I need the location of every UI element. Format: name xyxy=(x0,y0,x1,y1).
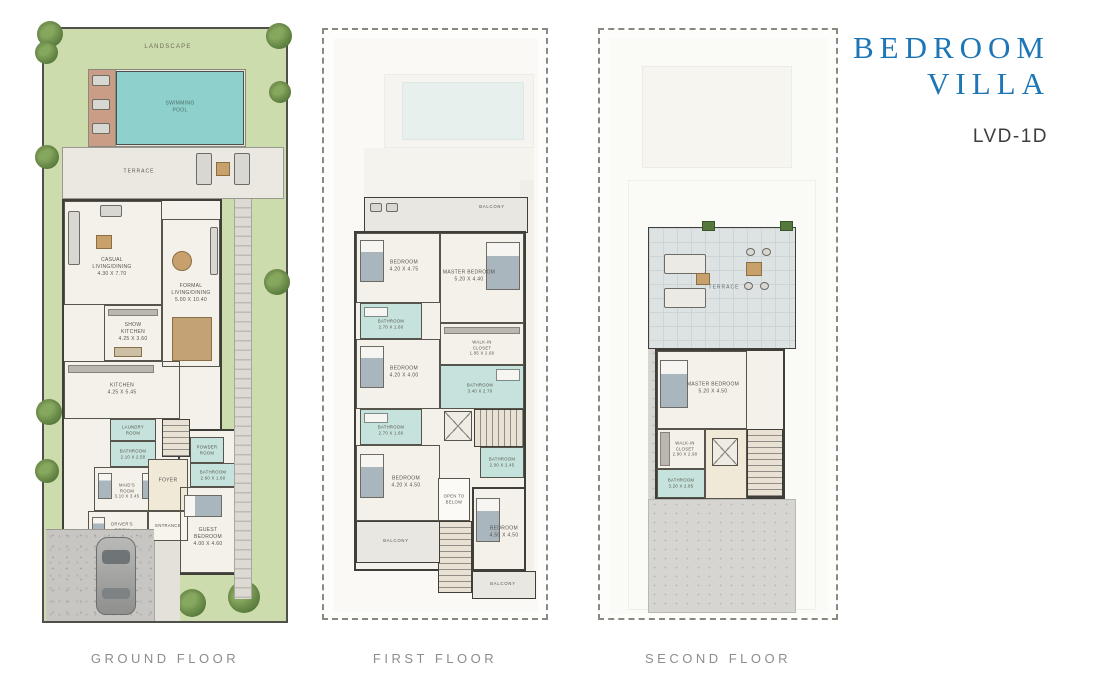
side-table-icon xyxy=(696,273,710,285)
room-bathroom-3 xyxy=(480,447,524,478)
planter-box-icon xyxy=(386,203,398,212)
faded-terrace xyxy=(364,148,534,200)
island-icon xyxy=(114,347,142,357)
table-icon xyxy=(746,262,762,276)
entry-walk xyxy=(154,541,180,621)
planter-box-icon xyxy=(370,203,382,212)
bed-icon xyxy=(360,454,384,498)
counter-icon xyxy=(108,309,158,316)
closet-shelf-icon xyxy=(444,327,520,334)
sofa-icon xyxy=(210,227,218,275)
bed-icon xyxy=(184,495,222,517)
bed-icon xyxy=(486,242,520,290)
lounger-icon xyxy=(664,288,706,308)
staircase xyxy=(162,419,190,457)
ground-floor-plan: LANDSCAPE SWIMMING POOL TERRACE CASUAL L… xyxy=(42,27,288,623)
armchair-icon xyxy=(234,153,250,185)
elevator xyxy=(444,411,472,441)
sofa-icon xyxy=(100,205,122,217)
tree-icon xyxy=(264,269,290,295)
bed-icon xyxy=(98,473,112,499)
car-windshield xyxy=(102,550,130,564)
planter-icon xyxy=(780,221,793,231)
tree-icon xyxy=(266,23,292,49)
closet-shelf-icon xyxy=(660,432,670,466)
bed-icon xyxy=(660,360,688,408)
table-icon xyxy=(216,162,230,176)
chair-icon xyxy=(746,248,755,256)
round-table-icon xyxy=(172,251,192,271)
page-title: 7 BEDROOM VILLA xyxy=(818,30,1050,102)
garden-path xyxy=(234,199,252,599)
tree-icon xyxy=(35,145,59,169)
staircase-lower xyxy=(438,521,472,593)
tree-icon xyxy=(36,399,62,425)
bathtub-icon xyxy=(364,307,388,317)
car-rear-window xyxy=(102,588,130,599)
caption-first-floor: FIRST FLOOR xyxy=(322,651,548,666)
page-title-line2: VILLA xyxy=(818,66,1050,102)
tree-icon xyxy=(178,589,206,617)
bathtub-icon xyxy=(364,413,388,423)
chair-icon xyxy=(760,282,769,290)
first-floor-plan: BALCONY BEDROOM 4.20 X 4.75 MASTER BEDRO… xyxy=(322,28,548,620)
tree-icon xyxy=(35,459,59,483)
tree-icon xyxy=(269,81,291,103)
terrace-area xyxy=(62,147,284,199)
page-title-line1: 7 BEDROOM xyxy=(818,30,1050,66)
counter-icon xyxy=(68,365,154,373)
staircase xyxy=(474,409,524,447)
tree-icon xyxy=(35,41,58,64)
room-bathroom-2 xyxy=(190,463,236,487)
bed-icon xyxy=(476,498,500,542)
dining-table-icon xyxy=(172,317,212,361)
swimming-pool xyxy=(116,71,244,145)
unit-code: LVD-1D xyxy=(973,126,1048,148)
open-to-below xyxy=(438,478,470,521)
balcony-right xyxy=(472,571,536,599)
sofa-icon xyxy=(68,211,80,265)
faded-roof-top xyxy=(642,66,792,168)
faded-pool xyxy=(402,82,524,140)
lounger-icon xyxy=(664,254,706,274)
roof-area xyxy=(648,499,796,613)
lounger-icon xyxy=(92,99,110,110)
room-bathroom xyxy=(657,469,705,498)
car-icon xyxy=(96,537,136,615)
armchair-icon xyxy=(196,153,212,185)
chair-icon xyxy=(744,282,753,290)
planter-icon xyxy=(702,221,715,231)
room-laundry xyxy=(110,419,156,441)
bed-icon xyxy=(360,240,384,282)
chair-icon xyxy=(762,248,771,256)
balcony-left xyxy=(356,521,440,563)
landscape-label: LANDSCAPE xyxy=(144,43,191,51)
second-floor-plan: TERRACE MASTER BEDROOM 5.20 X 4.50 WALK-… xyxy=(598,28,838,620)
caption-second-floor: SECOND FLOOR xyxy=(598,651,838,666)
bathtub-icon xyxy=(496,369,520,381)
room-powder xyxy=(190,437,224,463)
lounger-icon xyxy=(92,75,110,86)
caption-ground-floor: GROUND FLOOR xyxy=(42,651,288,666)
elevator xyxy=(712,438,738,466)
staircase xyxy=(747,429,783,497)
bed-icon xyxy=(360,346,384,388)
lounger-icon xyxy=(92,123,110,134)
ottoman-icon xyxy=(96,235,112,249)
